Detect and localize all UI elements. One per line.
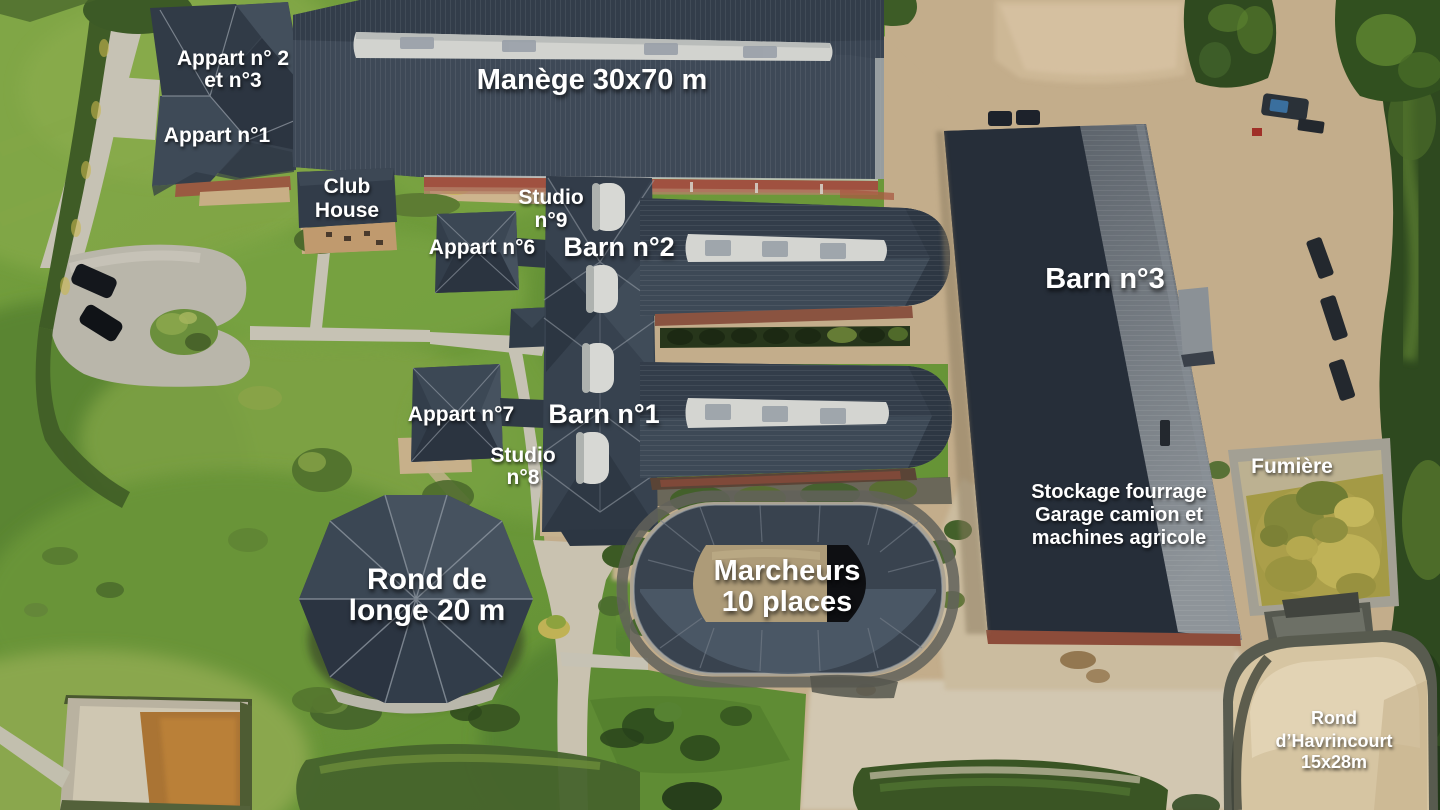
svg-text:Barn n°3: Barn n°3 (1045, 263, 1165, 295)
svg-text:Appart n°7: Appart n°7 (408, 403, 514, 426)
svg-text:Stockage fourrage: Stockage fourrage (1031, 481, 1207, 503)
svg-text:Club: Club (324, 175, 371, 198)
svg-text:Rond de: Rond de (367, 563, 487, 596)
svg-text:n°9: n°9 (535, 209, 568, 232)
svg-text:longe 20 m: longe 20 m (349, 594, 506, 627)
svg-text:Manège 30x70 m: Manège 30x70 m (477, 64, 708, 96)
svg-text:Appart n° 2: Appart n° 2 (177, 47, 289, 70)
svg-text:15x28m: 15x28m (1301, 752, 1367, 772)
svg-text:et n°3: et n°3 (204, 69, 261, 92)
svg-text:Rond: Rond (1311, 708, 1357, 728)
svg-text:Appart n°6: Appart n°6 (429, 236, 535, 259)
svg-text:d’Havrincourt: d’Havrincourt (1275, 731, 1392, 751)
svg-text:Barn n°2: Barn n°2 (563, 232, 674, 262)
svg-text:machines agricole: machines agricole (1032, 527, 1207, 549)
svg-text:Studio: Studio (490, 444, 555, 467)
svg-text:10 places: 10 places (722, 586, 853, 618)
svg-text:Barn n°1: Barn n°1 (548, 399, 659, 429)
svg-text:Studio: Studio (518, 186, 583, 209)
svg-text:Marcheurs: Marcheurs (714, 555, 861, 587)
svg-text:Fumière: Fumière (1251, 455, 1333, 478)
svg-text:n°8: n°8 (507, 466, 540, 489)
svg-text:Garage camion et: Garage camion et (1035, 504, 1203, 526)
svg-text:House: House (315, 199, 379, 222)
svg-text:Appart n°1: Appart n°1 (164, 124, 271, 147)
